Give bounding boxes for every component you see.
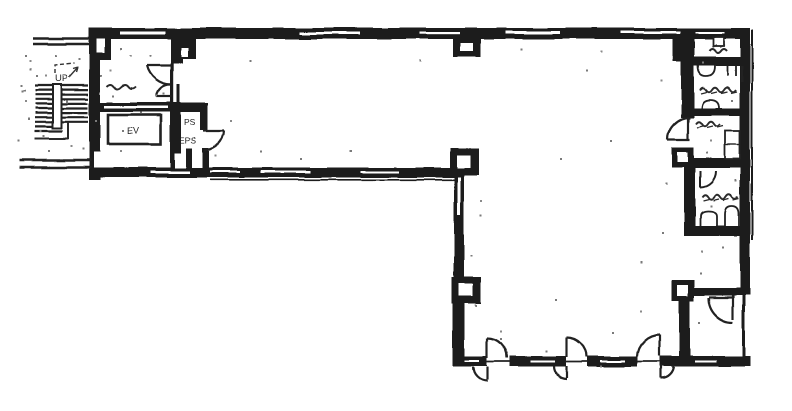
svg-text:PS: PS [184,117,196,127]
svg-text:EV: EV [127,126,139,136]
svg-text:EPS: EPS [179,135,196,145]
svg-text:UP: UP [55,73,68,84]
